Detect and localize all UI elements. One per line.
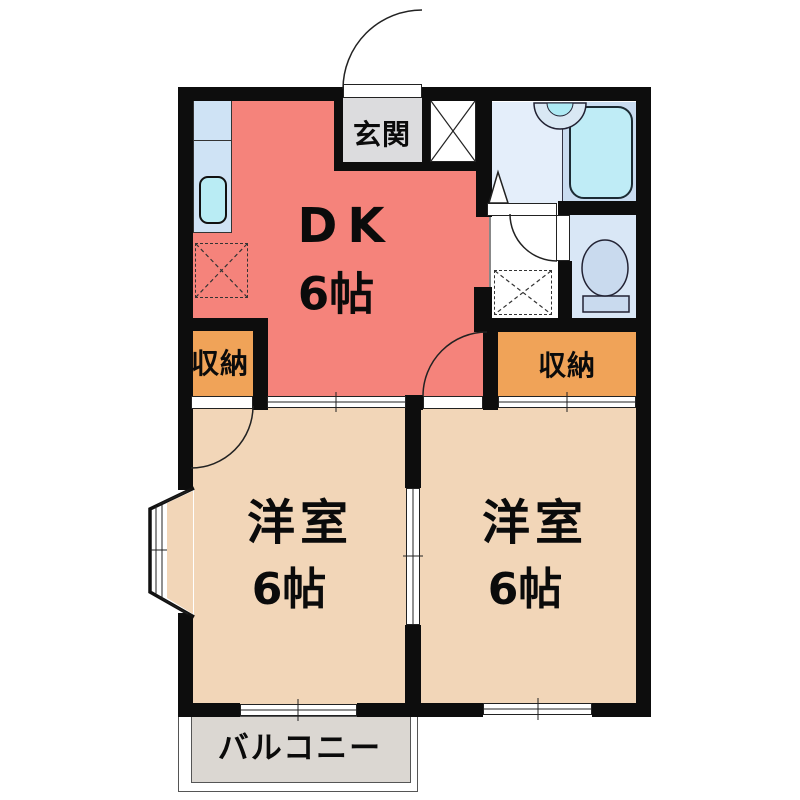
dk-hall-boundary [489,217,491,287]
room-left-size: 6帖 [252,568,327,612]
room-right-size: 6帖 [488,568,563,612]
wall-bottom-3 [592,703,651,717]
wall-washroom-toilet-divider [558,201,640,215]
floor-plan: DK 6帖 玄関 収納 収納 洋室 6帖 洋室 6帖 バルコニー [0,0,800,800]
wall-toilet-west [558,261,572,318]
washing-machine-space [494,270,552,315]
wall-left-lower [178,613,193,717]
toilet-floor [570,215,638,318]
wall-shoebox-left [422,87,430,162]
wall-genkan-bottom [334,162,492,171]
kitchen-sink [199,176,227,224]
room-left-name: 洋室 [247,499,353,547]
washroom-door-threshold [487,203,557,216]
wall-top-right [422,87,651,101]
refrigerator-space [195,243,248,298]
genkan-label: 玄関 [353,121,411,149]
wall-hall-bottom [474,318,640,332]
wall-left-upper [178,87,193,490]
door-opening-dk-room-right [423,396,483,409]
closet-left-label: 収納 [191,350,249,378]
wall-genkan-left [334,98,343,170]
toilet-door-leaf [556,215,570,261]
toilet-door-arc [510,214,557,261]
shoe-cabinet [430,100,476,162]
dk-room-name: DK [297,202,394,250]
bathtub [569,106,633,199]
room-left-floor [193,397,408,710]
room-right-floor [408,397,638,710]
sliding-door-dk-room-left [267,396,406,408]
kitchen-counter-divider [193,140,232,141]
wall-room-divider-upper [405,395,421,488]
closet-left-door [191,396,253,409]
room-right-name: 洋室 [482,499,588,547]
wall-closet-right-west [483,318,498,410]
dk-room-size: 6帖 [298,272,374,317]
window-room-right [483,703,592,715]
balcony-label: バルコニー [218,734,382,765]
wall-closet-left-east [253,318,268,410]
bay-window-glazing [150,491,188,614]
entrance-door-leaf [343,84,422,98]
wall-right [636,87,651,717]
sliding-door-between-rooms [406,488,420,625]
bay-window [150,488,194,617]
closet-right-sliding-door [498,396,636,408]
wall-bottom-1 [178,703,240,717]
window-room-left [240,704,357,716]
washroom-bath-divider [562,103,563,203]
washroom-floor [485,102,562,203]
closet-right-label: 収納 [538,352,596,380]
wall-top-left [178,87,343,101]
wall-room-divider-lower [405,625,421,710]
bay-window-floor [167,491,193,614]
wall-dk-east-upper [476,87,492,217]
entrance-door-arc [343,10,422,89]
